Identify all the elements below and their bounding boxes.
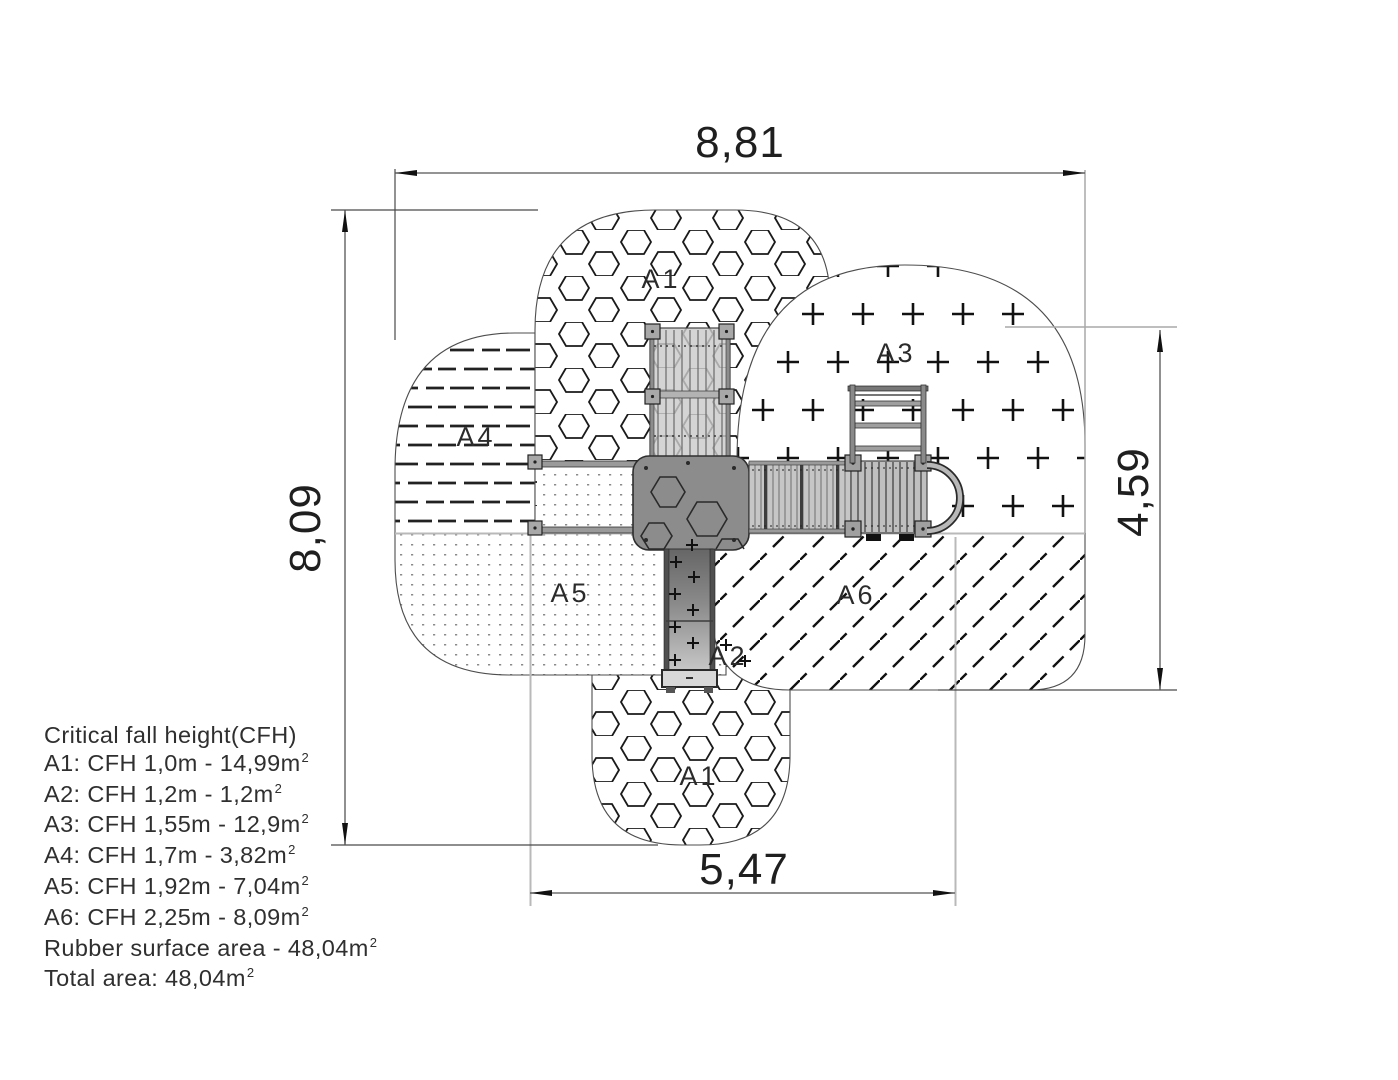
legend-item: A6: CFH 2,25m - 8,09m2: [44, 904, 377, 935]
ladder-rung: [855, 446, 921, 451]
ladder-rail: [850, 385, 855, 463]
ladder-top-bar: [848, 386, 928, 391]
foot-pad: [704, 687, 713, 693]
dimension-right-value: 4,59: [1109, 447, 1158, 537]
plan-drawing: A1 A3 A4 A5 A6 A2 A1 8,81 8,09 4,59: [0, 0, 1398, 1080]
right-bridge: [749, 461, 851, 533]
ladder-rung: [855, 423, 921, 428]
arrowhead: [1063, 170, 1085, 176]
zone-label-a1-bottom: A1: [679, 761, 718, 791]
arrowhead: [342, 210, 348, 232]
arrowhead: [1157, 330, 1163, 352]
dimension-bottom-value: 5,47: [699, 845, 789, 894]
arrowhead: [933, 890, 955, 896]
legend: Critical fall height(CFH) A1: CFH 1,0m -…: [44, 722, 377, 996]
legend-item: Total area: 48,04m2: [44, 965, 377, 996]
slide: [662, 549, 717, 693]
legend-item: A2: CFH 1,2m - 1,2m2: [44, 781, 377, 812]
ladder-rail: [921, 385, 926, 463]
left-walkway-rail-bottom: [536, 527, 637, 533]
tower-bridge: [645, 324, 734, 465]
zone-label-a4: A4: [456, 422, 495, 452]
legend-title: Critical fall height(CFH): [44, 722, 377, 750]
dimension-left-value: 8,09: [281, 483, 330, 573]
zone-label-a1-top: A1: [641, 264, 680, 294]
dimension-top-value: 8,81: [695, 118, 785, 167]
center-platform-deck: [633, 456, 749, 550]
center-platform: [633, 456, 749, 550]
dimension-right: 4,59: [1109, 330, 1163, 690]
left-walkway-rail-top: [536, 461, 637, 467]
zone-label-a5: A5: [550, 578, 589, 608]
arrowhead: [1157, 668, 1163, 690]
slide-rail: [664, 549, 669, 670]
foot-pad: [666, 687, 675, 693]
zone-label-a2: A2: [708, 641, 747, 671]
zone-label-a6: A6: [836, 580, 875, 610]
ladder-rung: [855, 401, 921, 406]
zone-label-a3: A3: [876, 338, 915, 368]
arrowhead: [395, 170, 417, 176]
legend-item: A5: CFH 1,92m - 7,04m2: [44, 873, 377, 904]
legend-item: A4: CFH 1,7m - 3,82m2: [44, 842, 377, 873]
climb-platform: [845, 455, 931, 541]
legend-item: A1: CFH 1,0m - 14,99m2: [44, 750, 377, 781]
dimension-top: 8,81: [395, 118, 1085, 176]
left-walkway-floor: [537, 467, 636, 527]
left-walkway: [528, 455, 637, 535]
foot-pad: [866, 534, 881, 541]
legend-item: A3: CFH 1,55m - 12,9m2: [44, 811, 377, 842]
arrowhead: [530, 890, 552, 896]
dimension-bottom: 5,47: [530, 845, 955, 896]
foot-pad: [899, 534, 914, 541]
zone-a6-area: [712, 533, 1085, 690]
legend-item: Rubber surface area - 48,04m2: [44, 935, 377, 966]
